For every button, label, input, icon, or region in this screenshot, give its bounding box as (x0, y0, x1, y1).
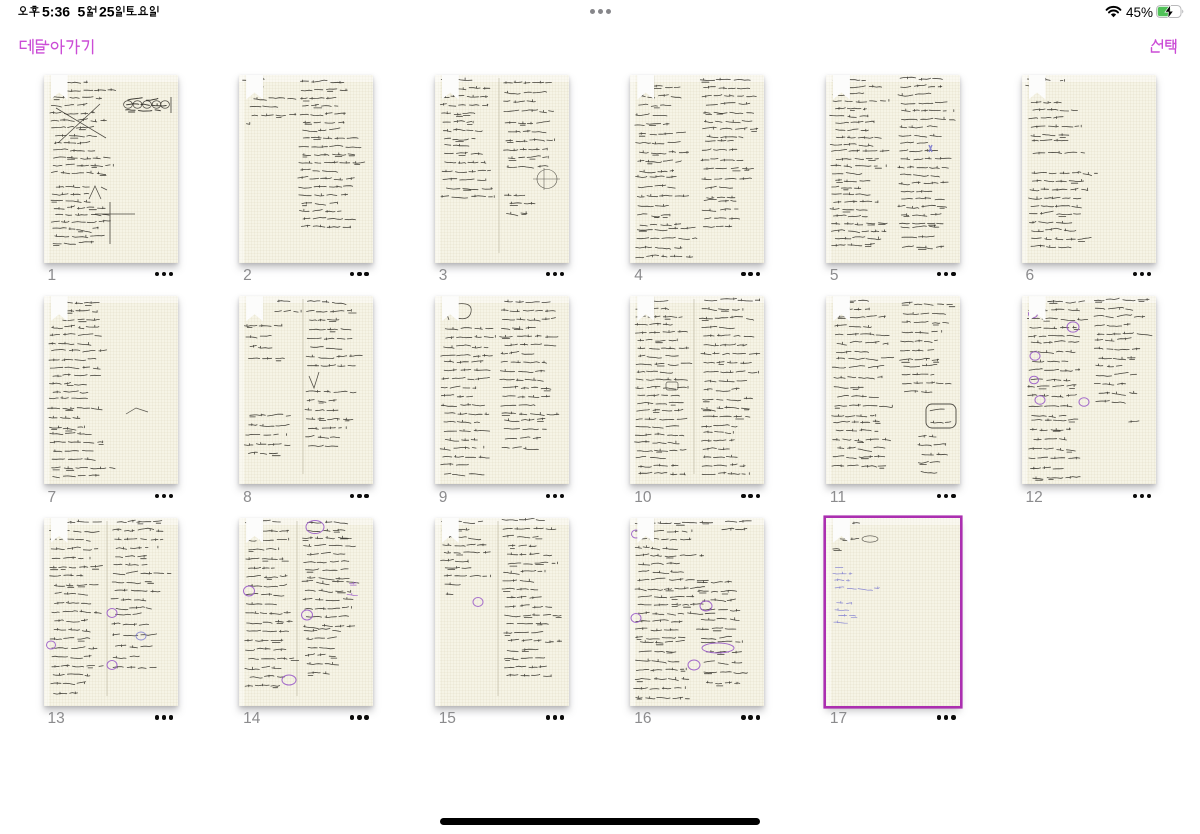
svg-text:5: 5 (78, 3, 86, 19)
svg-text:5:36: 5:36 (42, 3, 70, 19)
svg-text:25: 25 (99, 3, 115, 19)
